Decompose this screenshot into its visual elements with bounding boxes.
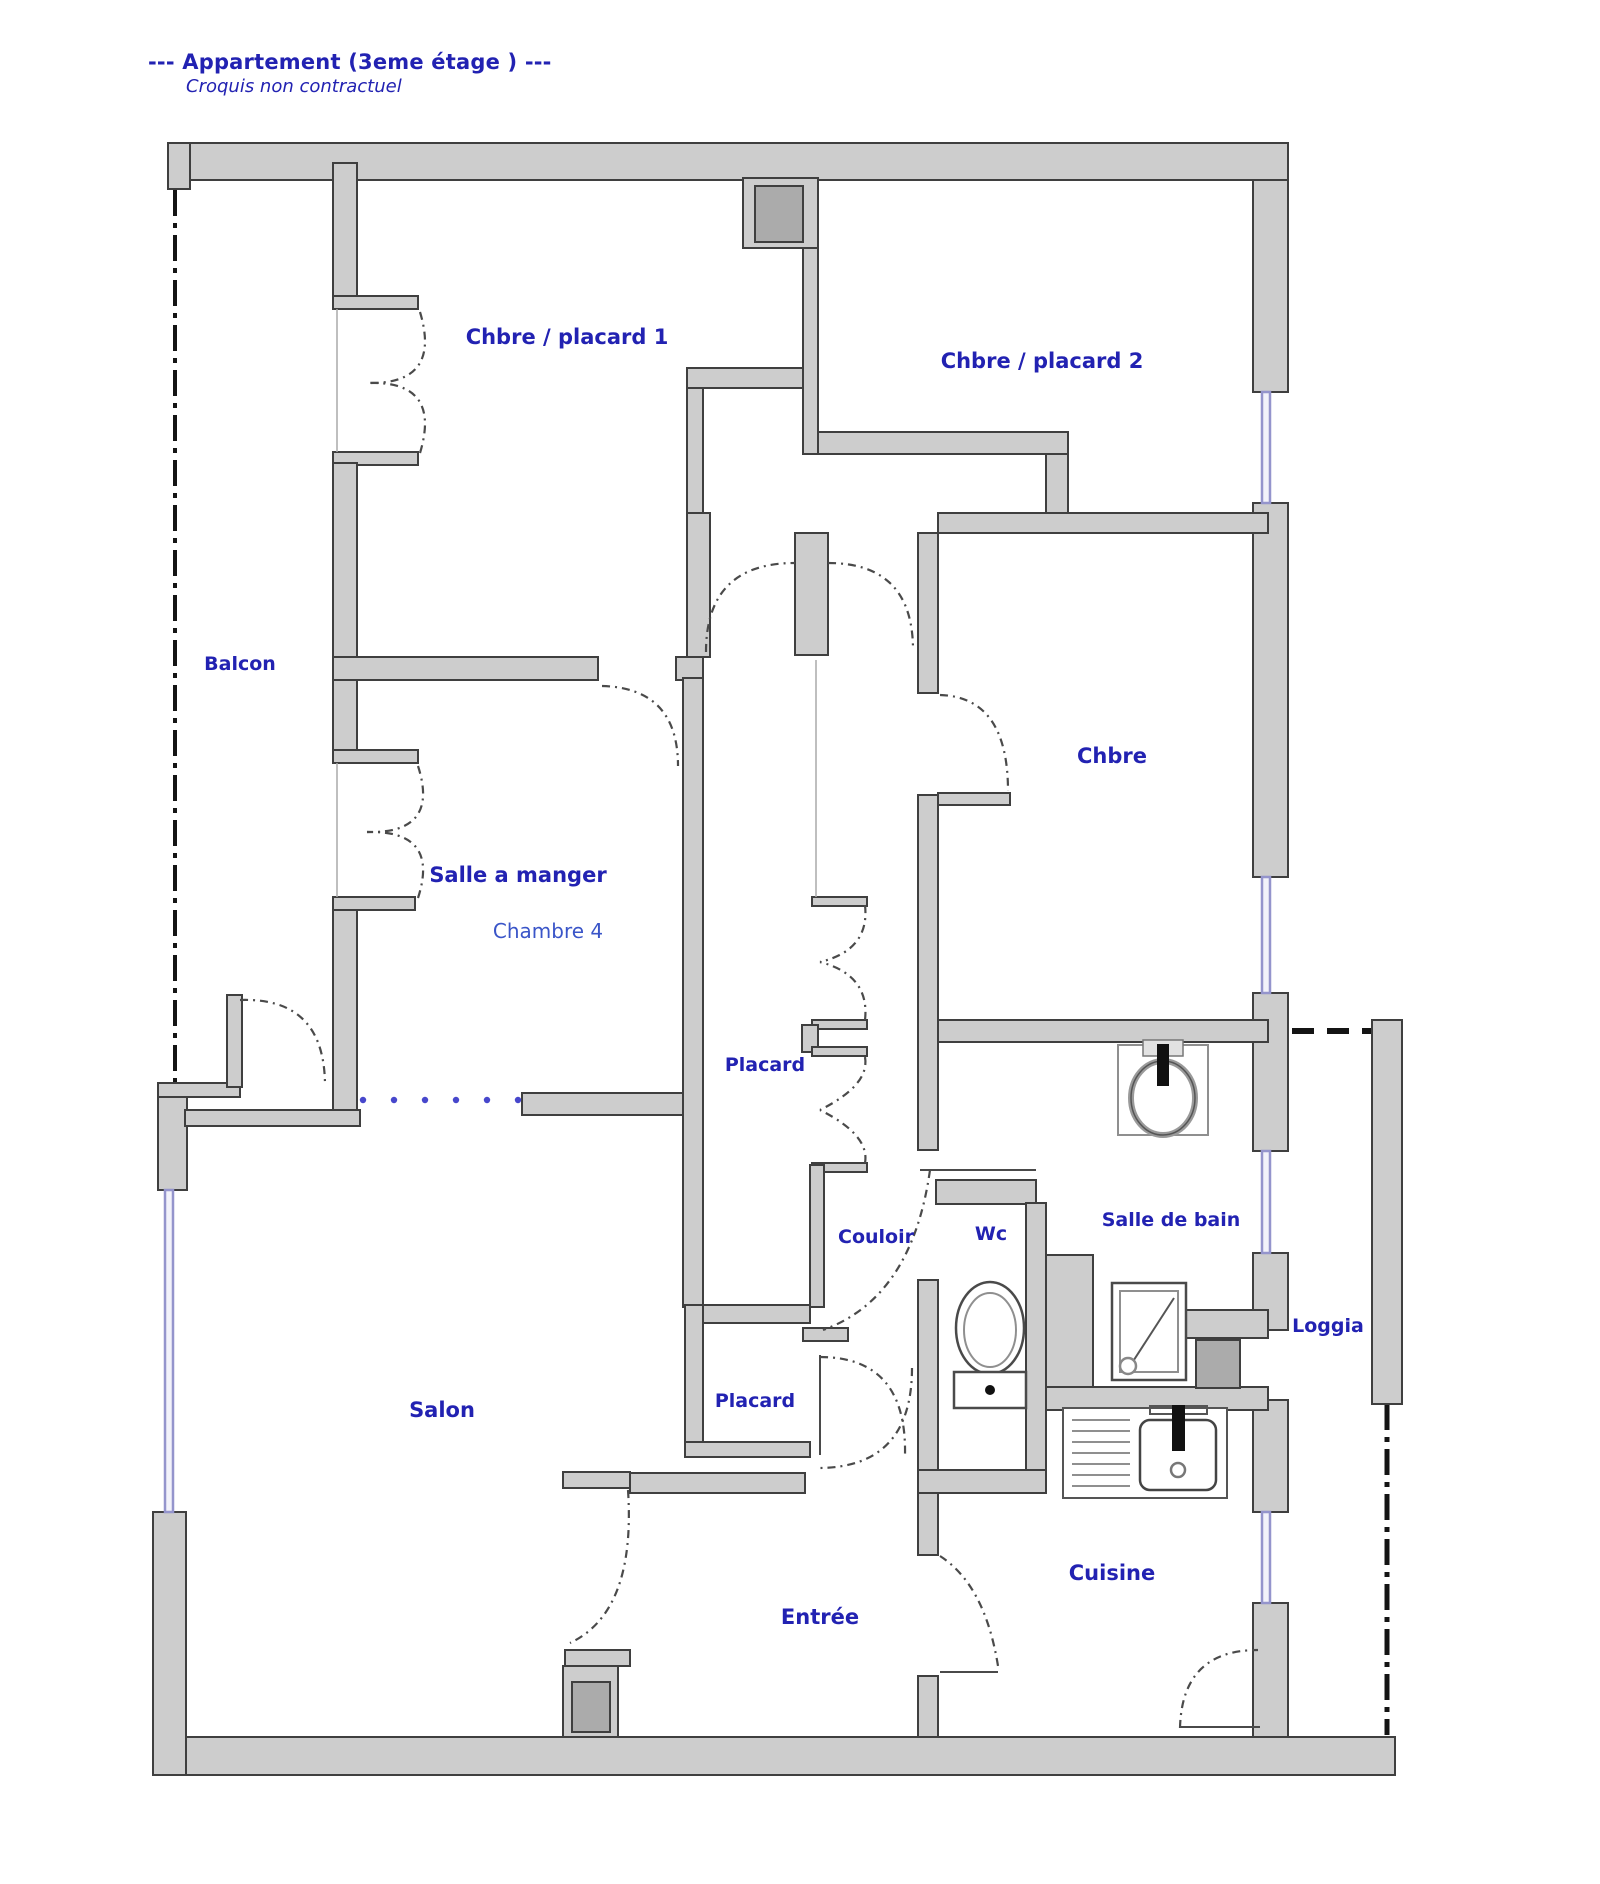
- junction-pillar: [795, 533, 828, 655]
- door-arc: [240, 1000, 325, 1086]
- window: [1262, 1151, 1270, 1253]
- closet-stub: [812, 1020, 867, 1029]
- closet-stub: [812, 897, 867, 906]
- wall-segment: [685, 1305, 703, 1457]
- wall-segment: [918, 1470, 1046, 1493]
- door-arc: [940, 695, 1008, 791]
- partition-dot: [515, 1097, 521, 1103]
- wall-segment: [333, 657, 598, 680]
- wall-segment: [333, 910, 357, 1115]
- wall-segment: [1253, 1400, 1288, 1512]
- duct-block: [1196, 1340, 1240, 1388]
- wall-segment: [683, 678, 703, 1307]
- wall-segment: [938, 1020, 1268, 1042]
- wall-segment: [333, 163, 357, 307]
- wall-segment: [676, 657, 703, 680]
- door-stub: [565, 1650, 630, 1666]
- partition-dot: [453, 1097, 459, 1103]
- room-label-placard-2: Placard: [715, 1390, 795, 1412]
- wall-segment: [918, 533, 938, 693]
- walls-group: [153, 143, 1402, 1775]
- wall-segment: [918, 1493, 938, 1555]
- floor-plan-canvas: Balcon Chbre / placard 1 Chbre / placard…: [0, 0, 1600, 1884]
- chimney-block-core: [755, 186, 803, 242]
- wall-segment: [153, 1512, 186, 1775]
- room-label-chbre-placard-2: Chbre / placard 2: [941, 349, 1144, 373]
- closet-stub: [812, 1047, 867, 1056]
- room-label-loggia: Loggia: [1292, 1315, 1364, 1337]
- window: [1262, 1512, 1270, 1603]
- wall-segment: [158, 1083, 187, 1190]
- window: [1262, 877, 1270, 993]
- wall-segment: [168, 143, 190, 189]
- shower-icon: [1112, 1283, 1186, 1380]
- door-arc: [820, 1110, 865, 1163]
- partition-dot: [484, 1097, 490, 1103]
- wall-segment: [803, 248, 818, 454]
- wall-segment: [1253, 180, 1288, 392]
- wall-segment: [630, 1473, 805, 1493]
- door-arc: [570, 1490, 629, 1643]
- wall-segment: [333, 463, 357, 760]
- room-label-entree: Entrée: [781, 1605, 859, 1629]
- wall-segment: [936, 1180, 1036, 1204]
- loggia-wall-bar: [1372, 1020, 1402, 1404]
- wall-segment: [1046, 454, 1068, 513]
- wall-segment: [687, 513, 710, 657]
- room-label-salle-de-bain: Salle de bain: [1102, 1209, 1241, 1231]
- washbasin-icon: [1118, 1040, 1208, 1135]
- door-arc: [828, 563, 913, 650]
- wall-segment: [818, 432, 1068, 454]
- wall-segment: [333, 750, 418, 763]
- door-arc: [818, 1368, 912, 1468]
- room-label-salon: Salon: [409, 1398, 475, 1422]
- wall-segment: [938, 513, 1268, 533]
- wall-segment: [522, 1093, 690, 1115]
- wall-segment: [687, 368, 818, 388]
- wall-segment: [685, 1442, 810, 1457]
- wall-segment: [918, 795, 938, 1150]
- window: [165, 1190, 173, 1512]
- wall-segment: [185, 1110, 360, 1126]
- door-arc: [820, 1357, 905, 1455]
- toilet-icon: [954, 1282, 1026, 1408]
- wall-segment: [1253, 993, 1288, 1151]
- door-stub: [563, 1472, 630, 1488]
- door-arc: [820, 905, 865, 962]
- wall-segment: [227, 995, 242, 1087]
- partition-dot: [391, 1097, 397, 1103]
- chimney-block-core: [572, 1682, 610, 1732]
- kitchen-sink-icon: [1063, 1405, 1227, 1498]
- room-label-chbre: Chbre: [1077, 744, 1147, 768]
- wall-segment: [1253, 503, 1288, 877]
- room-label-wc: Wc: [975, 1223, 1007, 1245]
- room-label-chambre-4: Chambre 4: [493, 919, 603, 943]
- door-arc: [820, 1057, 865, 1110]
- partition-dot: [360, 1097, 366, 1103]
- door-arc: [367, 383, 425, 453]
- room-label-salle-a-manger: Salle a manger: [429, 863, 607, 887]
- wall-segment: [155, 1737, 1395, 1775]
- wall-segment: [687, 388, 703, 513]
- door-arc: [706, 563, 795, 652]
- door-arc: [367, 832, 423, 898]
- window: [1262, 392, 1270, 503]
- room-label-cuisine: Cuisine: [1069, 1561, 1155, 1585]
- door-arc: [602, 686, 678, 766]
- door-arc: [367, 312, 425, 383]
- door-arc: [367, 766, 423, 832]
- floor-plan-page: --- Appartement (3eme étage ) --- Croqui…: [0, 0, 1600, 1884]
- wall-segment: [918, 1280, 938, 1473]
- wall-segment: [1026, 1203, 1046, 1493]
- wall-segment: [333, 296, 418, 309]
- partition-dot: [422, 1097, 428, 1103]
- wall-segment: [938, 793, 1010, 805]
- room-label-balcon: Balcon: [204, 653, 276, 675]
- open-partition-dots: [360, 1097, 521, 1103]
- room-label-couloir: Couloir: [838, 1226, 915, 1248]
- wall-segment: [918, 1676, 938, 1737]
- door-arc: [823, 1170, 930, 1330]
- wall-segment: [333, 897, 415, 910]
- wall-segment: [810, 1165, 824, 1307]
- room-label-placard-1: Placard: [725, 1054, 805, 1076]
- room-label-chbre-placard-1: Chbre / placard 1: [466, 325, 669, 349]
- duct-block: [1046, 1255, 1093, 1387]
- door-arc: [820, 962, 865, 1020]
- door-arc: [940, 1556, 998, 1666]
- door-arc: [1180, 1650, 1258, 1728]
